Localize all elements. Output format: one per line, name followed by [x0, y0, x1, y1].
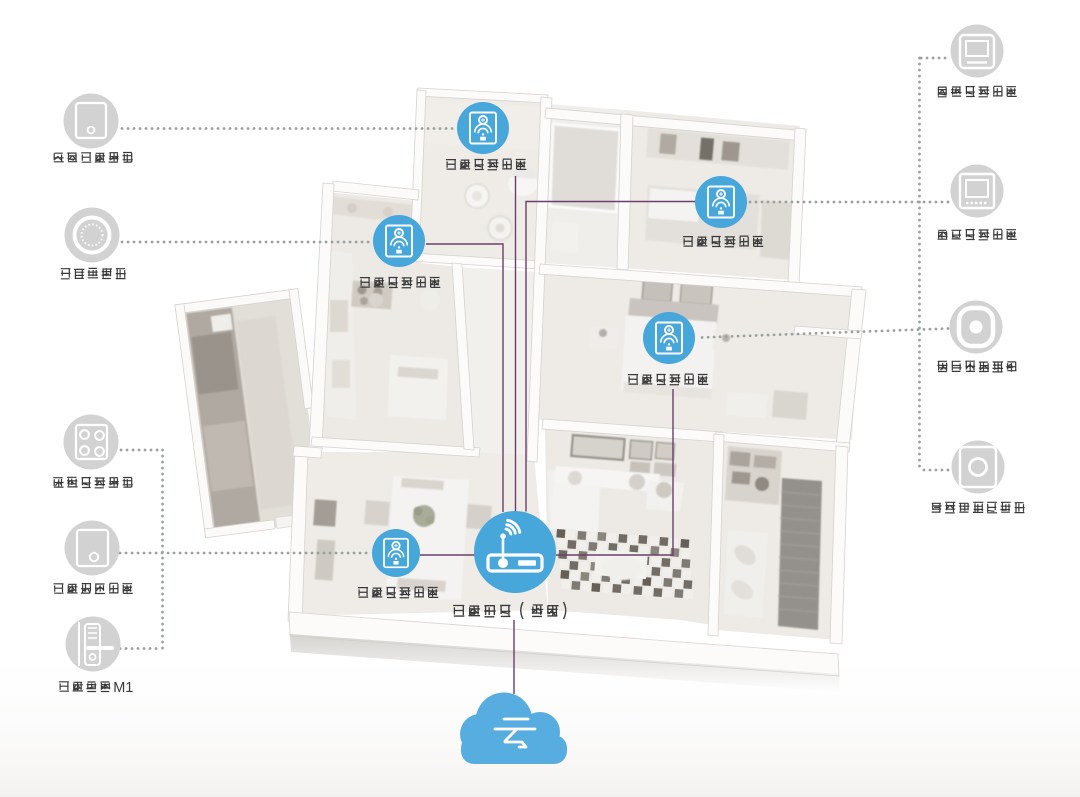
- svg-text:M1: M1: [113, 680, 133, 696]
